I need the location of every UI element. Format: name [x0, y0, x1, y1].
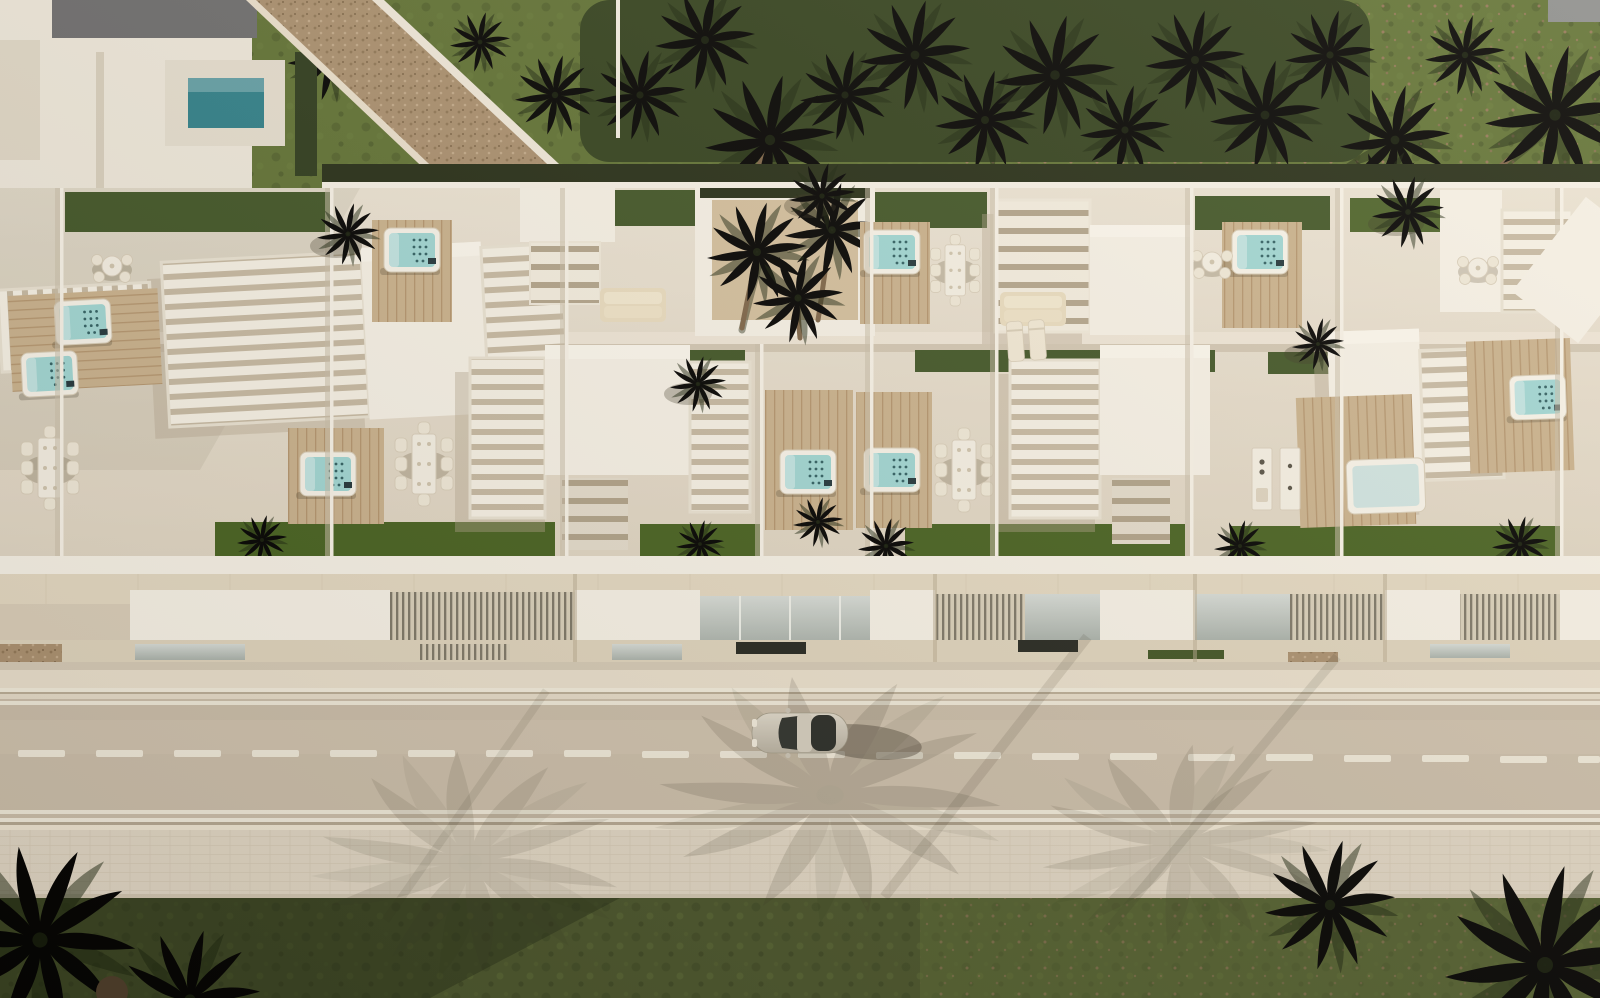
aerial-render-scene: [0, 0, 1600, 998]
sunlight-overlay: [0, 0, 1600, 998]
render-svg: [0, 0, 1600, 998]
